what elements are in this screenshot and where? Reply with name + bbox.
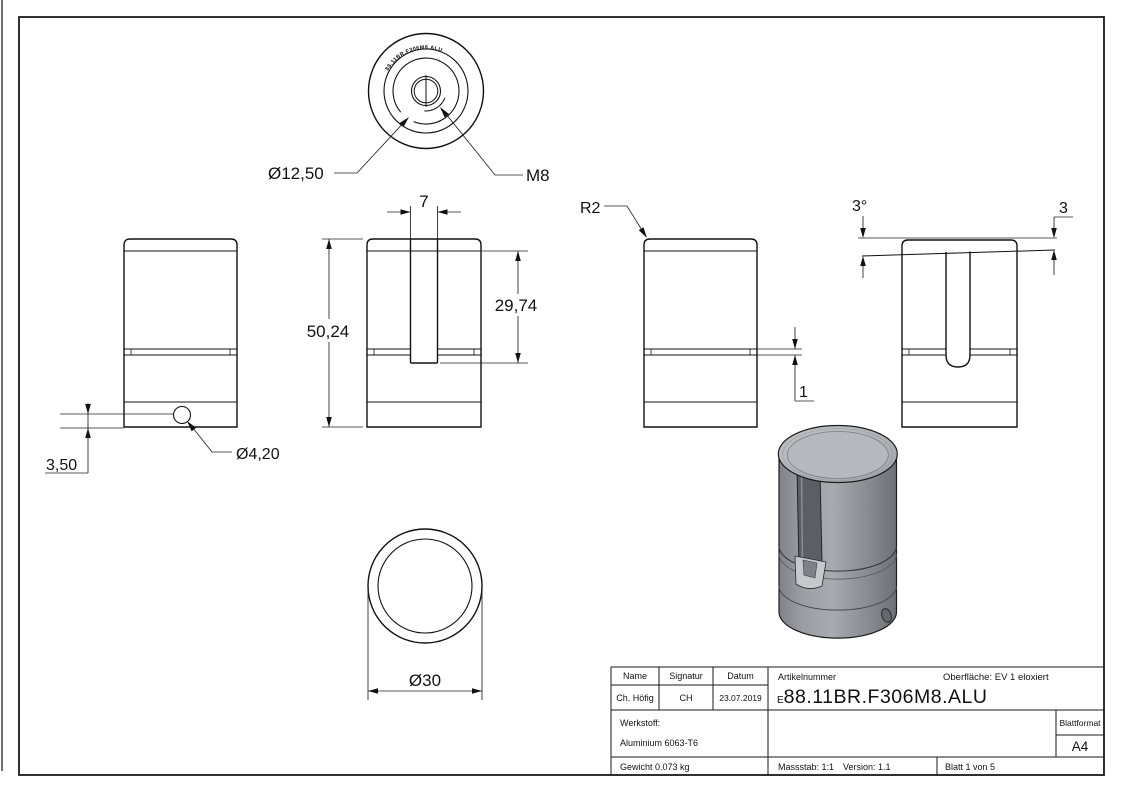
drawing-sheet: 88.11BR.F306M8.ALU Ø12,50 M8 3,50 Ø4,20 bbox=[0, 0, 1123, 794]
dim-thread: M8 bbox=[526, 166, 550, 185]
top-view: 88.11BR.F306M8.ALU Ø12,50 M8 bbox=[268, 34, 550, 186]
weight-value: Gewicht 0.073 kg bbox=[620, 762, 690, 772]
author-name: Ch. Höfig bbox=[611, 685, 659, 710]
bottom-view-outer-circle bbox=[368, 529, 482, 643]
dim-cap-radius: R2 bbox=[580, 200, 601, 217]
slot-cutout bbox=[797, 470, 822, 570]
svg-text:88.11BR.F306M8.ALU: 88.11BR.F306M8.ALU bbox=[385, 45, 444, 72]
sheet-format-label: Blattformat bbox=[1056, 710, 1104, 735]
drawing-border bbox=[19, 17, 1104, 775]
right-view-outline bbox=[902, 240, 1017, 427]
article-label: Artikelnummer bbox=[778, 672, 836, 682]
front-view: 7 50,24 29,74 bbox=[307, 192, 538, 427]
dim-overall-height: 50,24 bbox=[307, 322, 350, 341]
left-view: 3,50 Ø4,20 bbox=[45, 239, 280, 474]
date-label: Datum bbox=[713, 667, 768, 685]
dim-hole-offset: 3,50 bbox=[46, 457, 77, 474]
bottom-view: Ø30 bbox=[368, 529, 482, 700]
signature-label: Signatur bbox=[659, 667, 713, 685]
author-signature: CH bbox=[659, 685, 713, 710]
slot-profile bbox=[946, 252, 970, 368]
rear-view: R2 1 bbox=[580, 200, 814, 427]
front-view-outline bbox=[367, 239, 481, 427]
left-view-outline bbox=[124, 239, 237, 427]
right-view: 3° 3 bbox=[852, 198, 1073, 427]
version-value: Version: 1.1 bbox=[843, 762, 891, 772]
drawing-date: 23.07.2019 bbox=[713, 685, 768, 710]
engraving-text: 88.11BR.F306M8.ALU bbox=[385, 45, 444, 72]
article-number-row: E88.11BR.F306M8.ALU bbox=[777, 686, 987, 709]
dim-outer-diameter: Ø30 bbox=[409, 671, 441, 690]
dim-groove-width: 1 bbox=[799, 384, 808, 401]
dim-slot-depth: 29,74 bbox=[495, 296, 538, 315]
dim-counterbore: Ø12,50 bbox=[268, 164, 324, 183]
surface-finish: Oberfläche: EV 1 eloxiert bbox=[943, 672, 1049, 683]
article-number: 88.11BR.F306M8.ALU bbox=[784, 686, 988, 708]
scale-value: Massstab: 1:1 bbox=[778, 762, 834, 772]
bottom-view-inner-circle bbox=[378, 539, 472, 633]
rear-view-outline bbox=[644, 239, 757, 427]
sheet-number: Blatt 1 von 5 bbox=[945, 762, 995, 772]
render-3d-view bbox=[778, 426, 897, 639]
material-value: Aluminium 6063-T6 bbox=[620, 738, 698, 748]
dim-slot-width: 7 bbox=[419, 192, 428, 211]
dim-top-drop: 3 bbox=[1059, 200, 1068, 217]
side-hole bbox=[174, 407, 191, 424]
article-number-prefix: E bbox=[777, 695, 784, 706]
dim-hole-diameter: Ø4,20 bbox=[236, 446, 280, 463]
name-label: Name bbox=[611, 667, 659, 685]
material-label: Werkstoff: bbox=[620, 718, 660, 728]
sheet-format: A4 bbox=[1056, 735, 1104, 757]
dim-top-angle: 3° bbox=[852, 198, 867, 215]
